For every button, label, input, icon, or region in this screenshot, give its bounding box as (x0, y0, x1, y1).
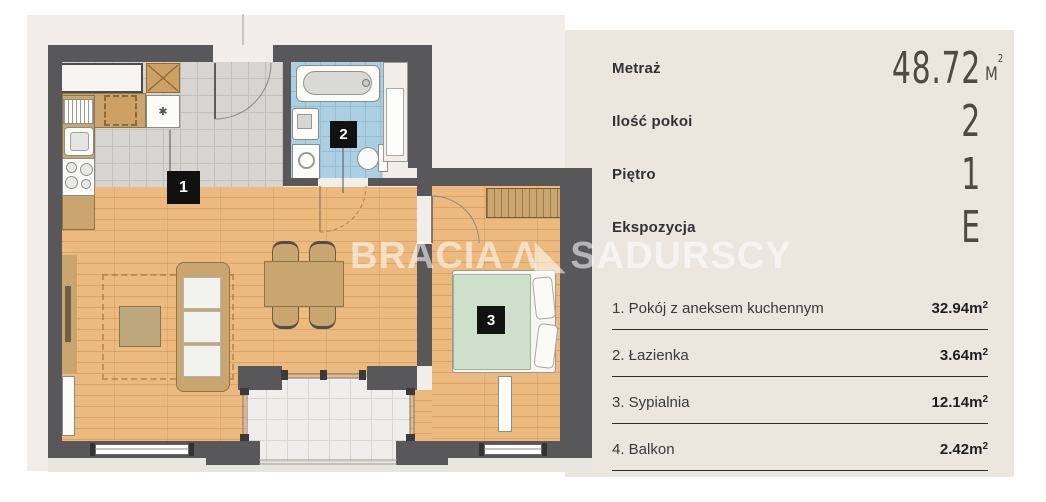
brand-logo-icon: Λ◣ (512, 235, 563, 277)
brand-name-part2: SADURSCY (570, 235, 791, 277)
balcony-glass-right (410, 392, 414, 438)
brand-name-part1: BRACIA (350, 235, 504, 277)
brand-watermark: BRACIAΛ◣SADURSCY (350, 233, 792, 278)
balcony-glass-left (243, 392, 247, 438)
room-badge-bedroom: 3 (477, 306, 505, 334)
room-badge-bathroom: 2 (330, 121, 357, 148)
floorplan-listing: Metraż 48.72 M2 Ilość pokoi 2 Piętro 1 E… (0, 0, 1046, 502)
balcony-front-edge (259, 460, 397, 464)
glass-junction-mark (406, 388, 415, 395)
glass-junction-mark (406, 434, 415, 441)
glass-junction-mark (359, 370, 366, 380)
glass-junction-mark (320, 370, 327, 380)
glass-junction-mark (240, 434, 249, 441)
room-badge-living: 1 (167, 171, 200, 204)
glass-junction-mark (281, 370, 288, 380)
entry-door-arc (215, 63, 271, 119)
cabinet-x-mark (148, 65, 178, 91)
glass-junction-mark (240, 388, 249, 395)
